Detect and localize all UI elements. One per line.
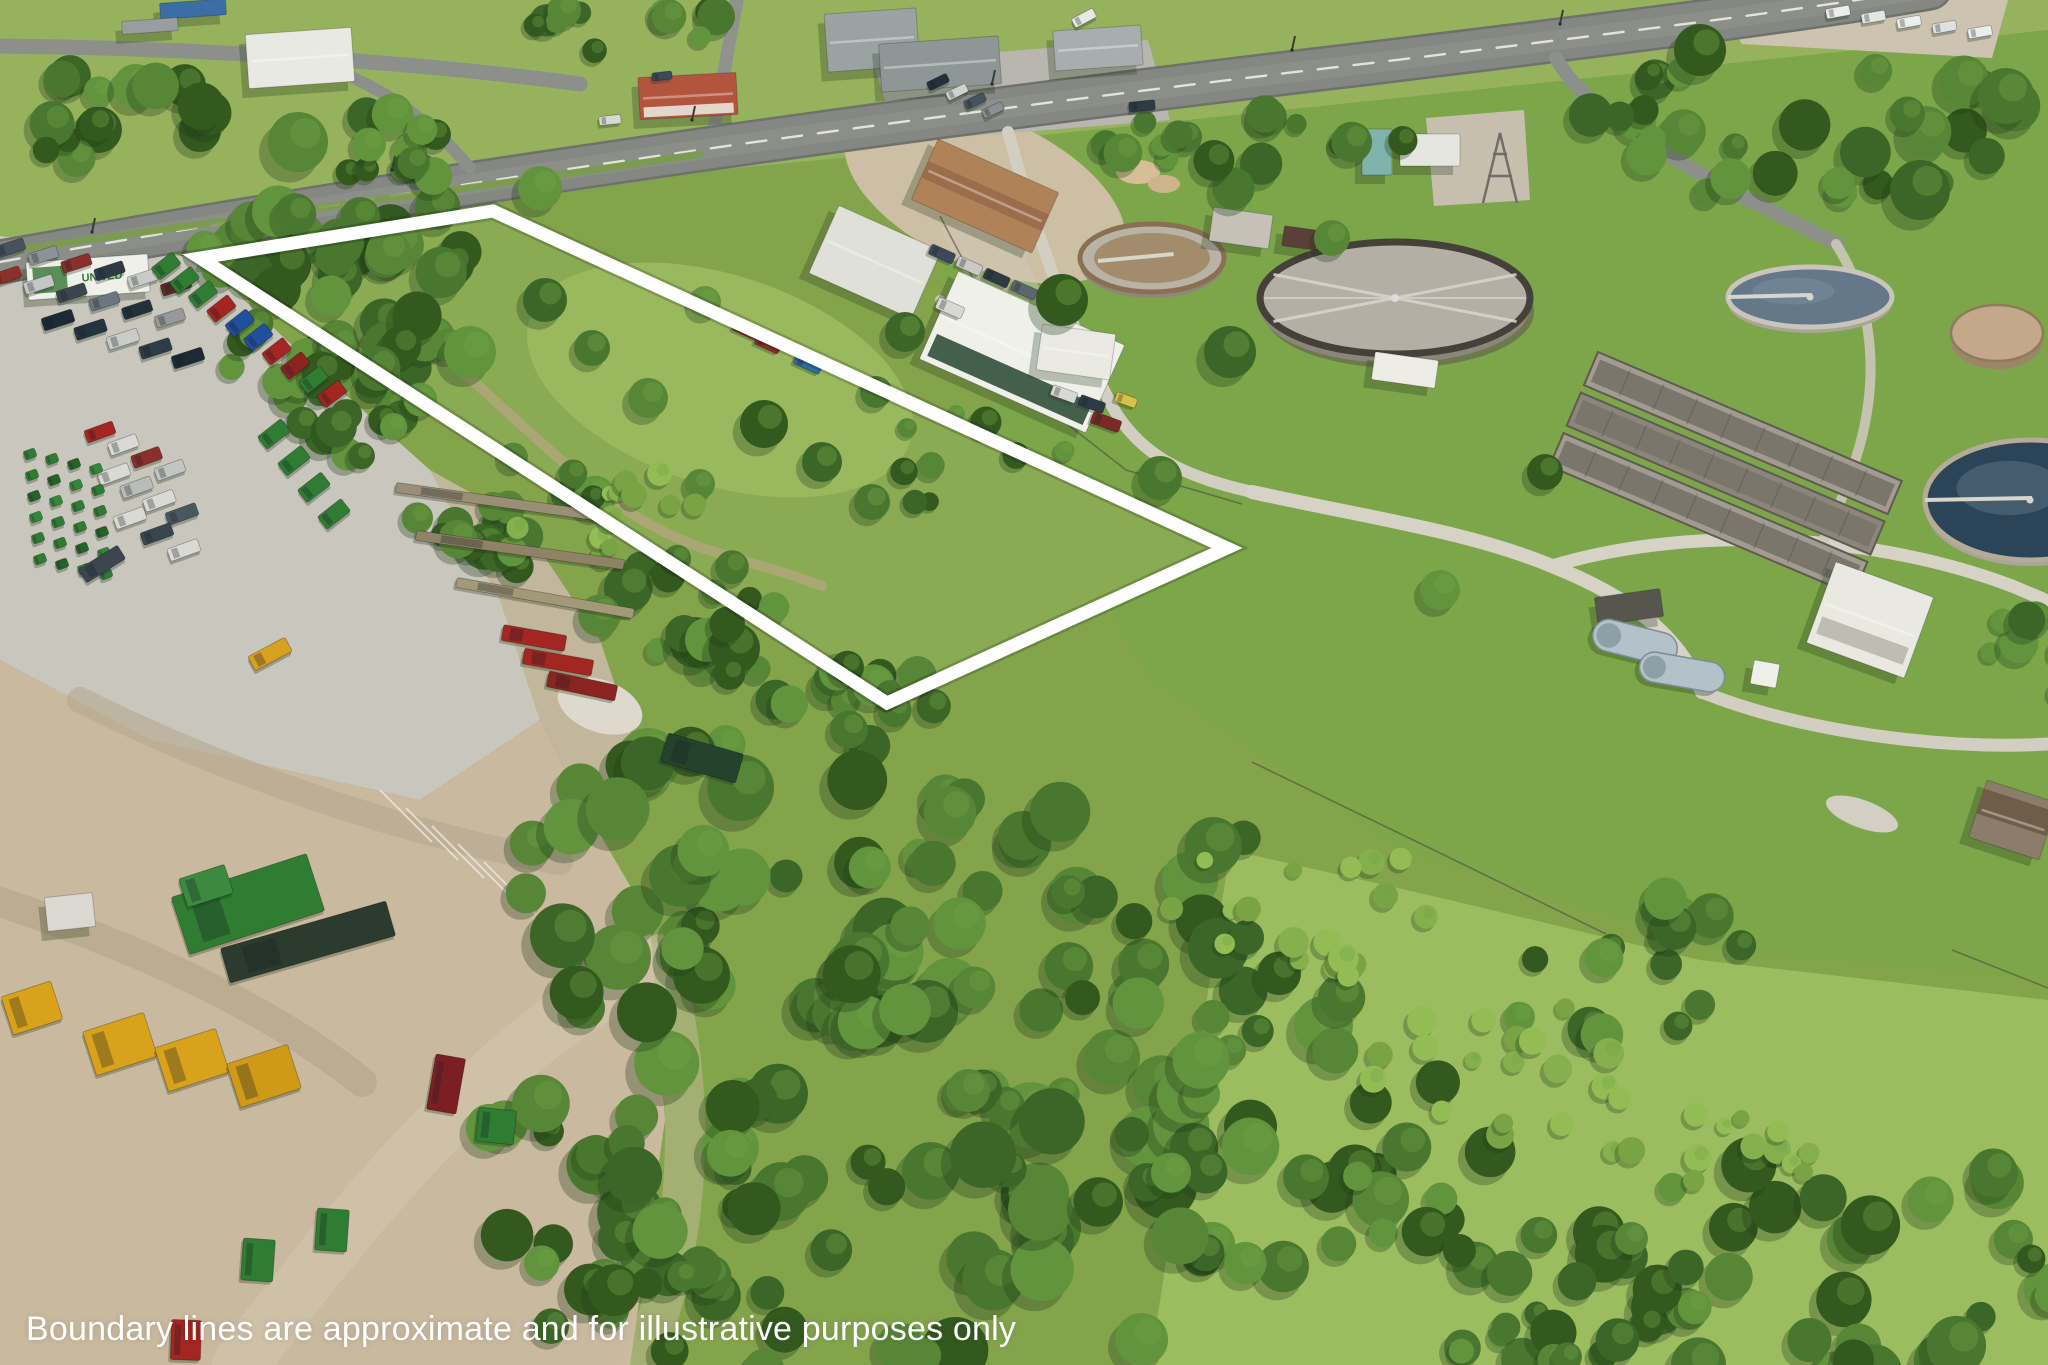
- storage-tank-tan: [1951, 305, 2043, 369]
- clarifier-water: [1728, 267, 1892, 333]
- store-redroof: [631, 72, 739, 128]
- disclaimer-caption: Boundary lines are approximate and for i…: [26, 1310, 1016, 1349]
- commercial-2: [871, 36, 1002, 102]
- aerial-photo-canvas: UNITED: [0, 0, 2048, 1365]
- warehouse-nw: [238, 27, 355, 98]
- yard-shed: [37, 893, 96, 942]
- plant-office: [1028, 323, 1116, 389]
- container-gray: [115, 18, 179, 44]
- aerial-photo: UNITED Boundary lines are approximate an…: [0, 0, 2048, 1365]
- commercial-3: [1046, 25, 1144, 81]
- trickling-filter: [1260, 242, 1534, 368]
- implement-green: [473, 1107, 517, 1148]
- clarifier-empty: [1080, 224, 1224, 298]
